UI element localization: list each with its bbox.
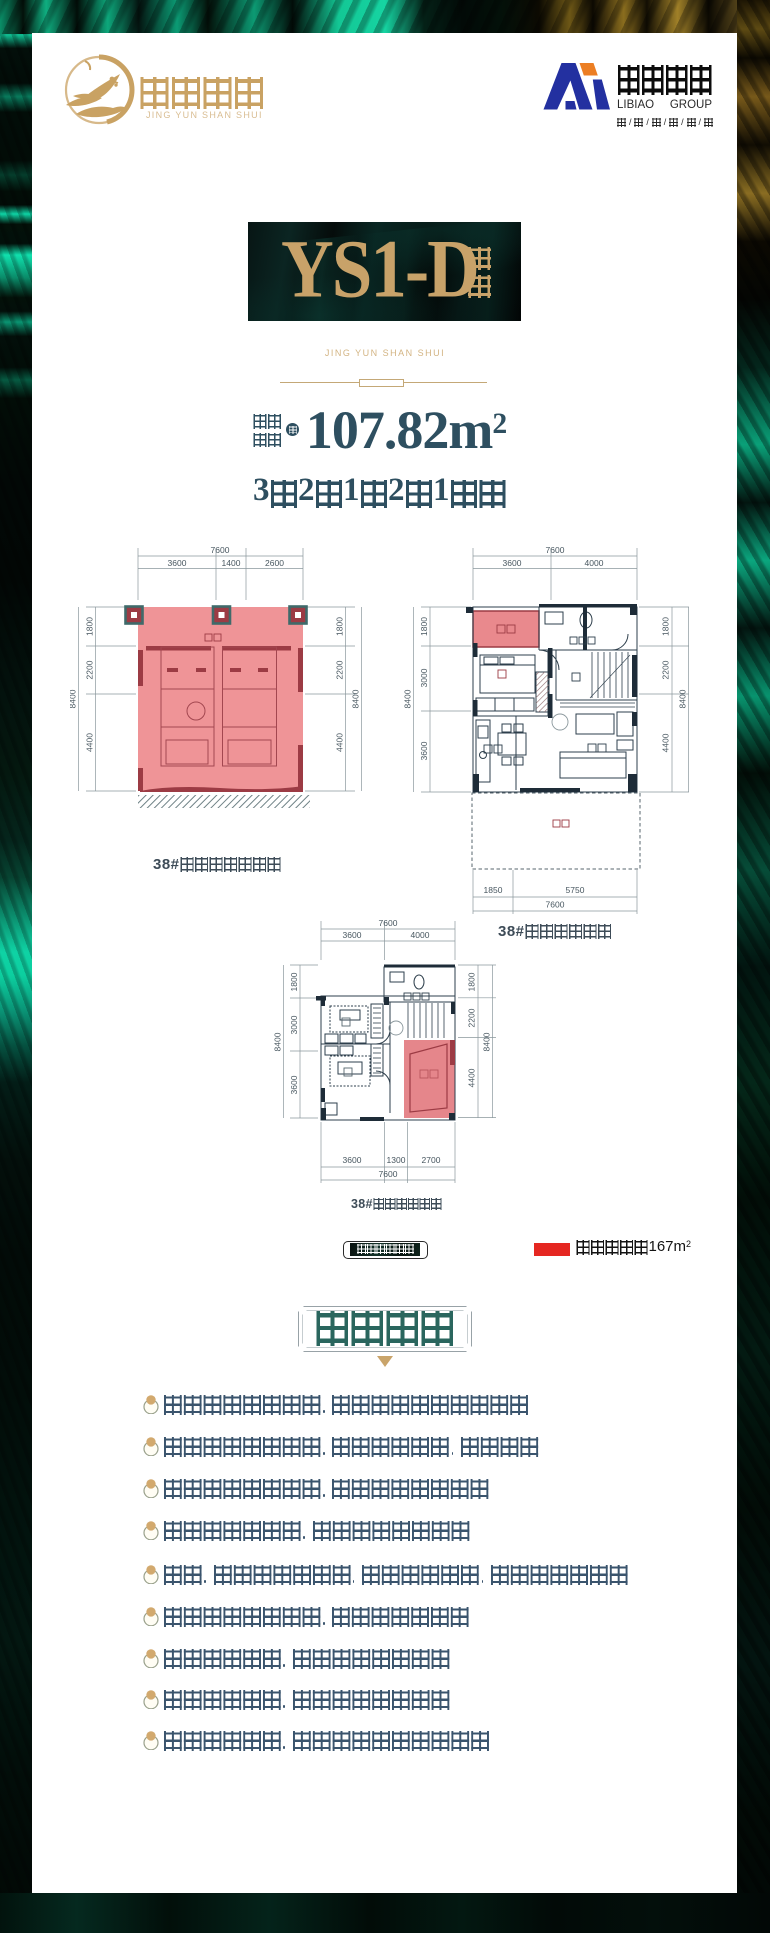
svg-text:7600: 7600 — [546, 545, 565, 555]
svg-text:2200: 2200 — [467, 1008, 477, 1027]
svg-text:1300: 1300 — [387, 1155, 406, 1165]
svg-text:8400: 8400 — [273, 1032, 283, 1051]
svg-text:1800: 1800 — [661, 617, 671, 636]
svg-text:1400: 1400 — [222, 558, 241, 568]
svg-text:2200: 2200 — [661, 660, 671, 679]
svg-text:3600: 3600 — [503, 558, 522, 568]
svg-text:1800: 1800 — [85, 617, 95, 636]
svg-text:4400: 4400 — [661, 733, 671, 752]
svg-text:7600: 7600 — [546, 900, 565, 910]
svg-text:3600: 3600 — [419, 741, 429, 760]
svg-text:1800: 1800 — [419, 617, 429, 636]
svg-text:2200: 2200 — [85, 660, 95, 679]
svg-text:3600: 3600 — [289, 1075, 299, 1094]
svg-text:3600: 3600 — [343, 930, 362, 940]
svg-text:1800: 1800 — [335, 617, 345, 636]
svg-text:3000: 3000 — [289, 1015, 299, 1034]
svg-text:8400: 8400 — [403, 689, 413, 708]
svg-text:1800: 1800 — [467, 972, 477, 991]
svg-text:1850: 1850 — [484, 885, 503, 895]
svg-text:8400: 8400 — [678, 689, 688, 708]
svg-text:7600: 7600 — [379, 918, 398, 928]
svg-text:3600: 3600 — [343, 1155, 362, 1165]
svg-text:3000: 3000 — [419, 668, 429, 687]
svg-text:3600: 3600 — [168, 558, 187, 568]
svg-text:1800: 1800 — [289, 972, 299, 991]
svg-text:4400: 4400 — [85, 733, 95, 752]
svg-text:4400: 4400 — [467, 1068, 477, 1087]
svg-text:8400: 8400 — [70, 689, 78, 708]
svg-text:2700: 2700 — [422, 1155, 441, 1165]
svg-text:8400: 8400 — [482, 1032, 492, 1051]
svg-text:5750: 5750 — [566, 885, 585, 895]
svg-text:7600: 7600 — [211, 545, 230, 555]
svg-text:7600: 7600 — [379, 1169, 398, 1179]
svg-text:8400: 8400 — [351, 689, 361, 708]
svg-text:2200: 2200 — [335, 660, 345, 679]
svg-text:4400: 4400 — [335, 733, 345, 752]
svg-text:4000: 4000 — [585, 558, 604, 568]
svg-text:4000: 4000 — [411, 930, 430, 940]
svg-text:2600: 2600 — [265, 558, 284, 568]
